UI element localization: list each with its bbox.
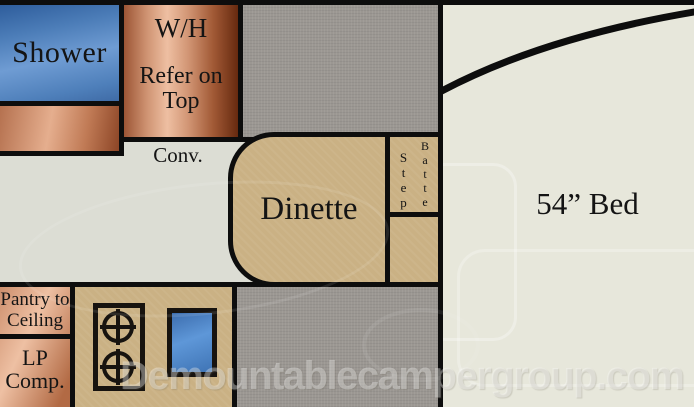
cabover-profile-curve <box>443 5 694 125</box>
room-shower: Shower <box>0 0 124 106</box>
step-lower-box <box>385 212 443 287</box>
watermark-text: Demountablecampergroup.com <box>120 354 694 399</box>
step-battery-box: Step Battery <box>385 132 443 222</box>
shower-label: Shower <box>12 36 107 70</box>
pantry-label: Pantry to Ceiling <box>0 289 70 332</box>
stove-burner-icon <box>102 311 134 343</box>
shower-cabinet <box>0 101 124 156</box>
conv-label: Conv. <box>128 143 228 168</box>
water-heater-label: W/H <box>155 13 207 44</box>
floorplan-canvas: Shower W/H Refer on Top Conv. Dinette St… <box>0 0 694 407</box>
bed-label: 54” Bed <box>481 186 694 222</box>
water-heater-refer-box: W/H Refer on Top <box>119 0 243 142</box>
dinette-label: Dinette <box>260 191 357 228</box>
pantry-divider <box>0 334 70 339</box>
step-label: Step <box>397 150 410 210</box>
overhead-cabinet <box>238 0 443 142</box>
lp-compartment-label: LP Comp. <box>0 346 70 392</box>
pantry-lp-box: Pantry to Ceiling LP Comp. <box>0 282 75 407</box>
room-bed: 54” Bed <box>443 0 694 407</box>
refer-on-top-label: Refer on Top <box>139 64 222 115</box>
room-dinette: Dinette <box>228 132 390 287</box>
